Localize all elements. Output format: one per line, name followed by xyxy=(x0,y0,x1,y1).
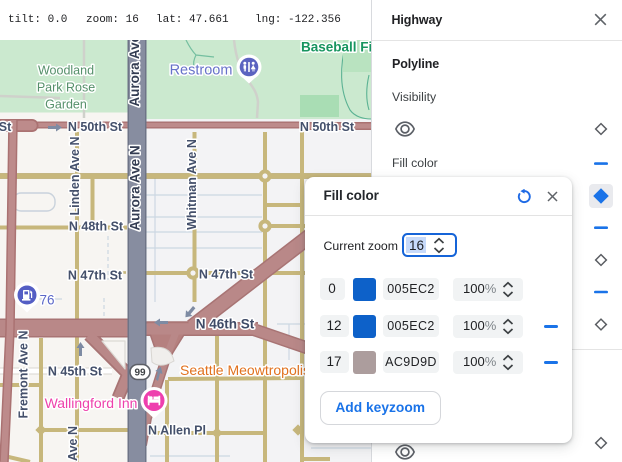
svg-text:Linden Ave N: Linden Ave N xyxy=(68,137,82,216)
svg-text:Baseball Fie: Baseball Fie xyxy=(301,40,371,55)
svg-text:N 46th St: N 46th St xyxy=(196,317,255,332)
svg-text:N Allen Pl: N Allen Pl xyxy=(148,424,206,438)
svg-text:Whitman Ave N: Whitman Ave N xyxy=(185,139,199,230)
svg-text:Ave N: Ave N xyxy=(66,426,80,461)
svg-text:N 50th St: N 50th St xyxy=(300,120,355,134)
svg-text:99: 99 xyxy=(134,368,146,379)
svg-text:N 48th St: N 48th St xyxy=(69,220,124,234)
svg-text:76: 76 xyxy=(39,293,54,308)
svg-text:Aurora Ave N: Aurora Ave N xyxy=(128,145,143,230)
svg-text:N 47th St: N 47th St xyxy=(68,269,123,283)
svg-text:Restroom: Restroom xyxy=(170,63,233,79)
svg-text:Park Rose: Park Rose xyxy=(37,81,95,95)
svg-text:N 47th St: N 47th St xyxy=(199,268,254,282)
svg-text:Fremont Ave N: Fremont Ave N xyxy=(17,331,31,419)
svg-text:St: St xyxy=(0,120,12,134)
svg-text:N 50th St: N 50th St xyxy=(68,120,123,134)
svg-text:Woodland: Woodland xyxy=(38,64,94,78)
svg-text:Aurora Ave N: Aurora Ave N xyxy=(127,40,142,107)
svg-text:Wallingford Inn: Wallingford Inn xyxy=(45,395,138,411)
svg-text:N 45th St: N 45th St xyxy=(48,365,103,379)
svg-text:Garden: Garden xyxy=(45,98,87,112)
